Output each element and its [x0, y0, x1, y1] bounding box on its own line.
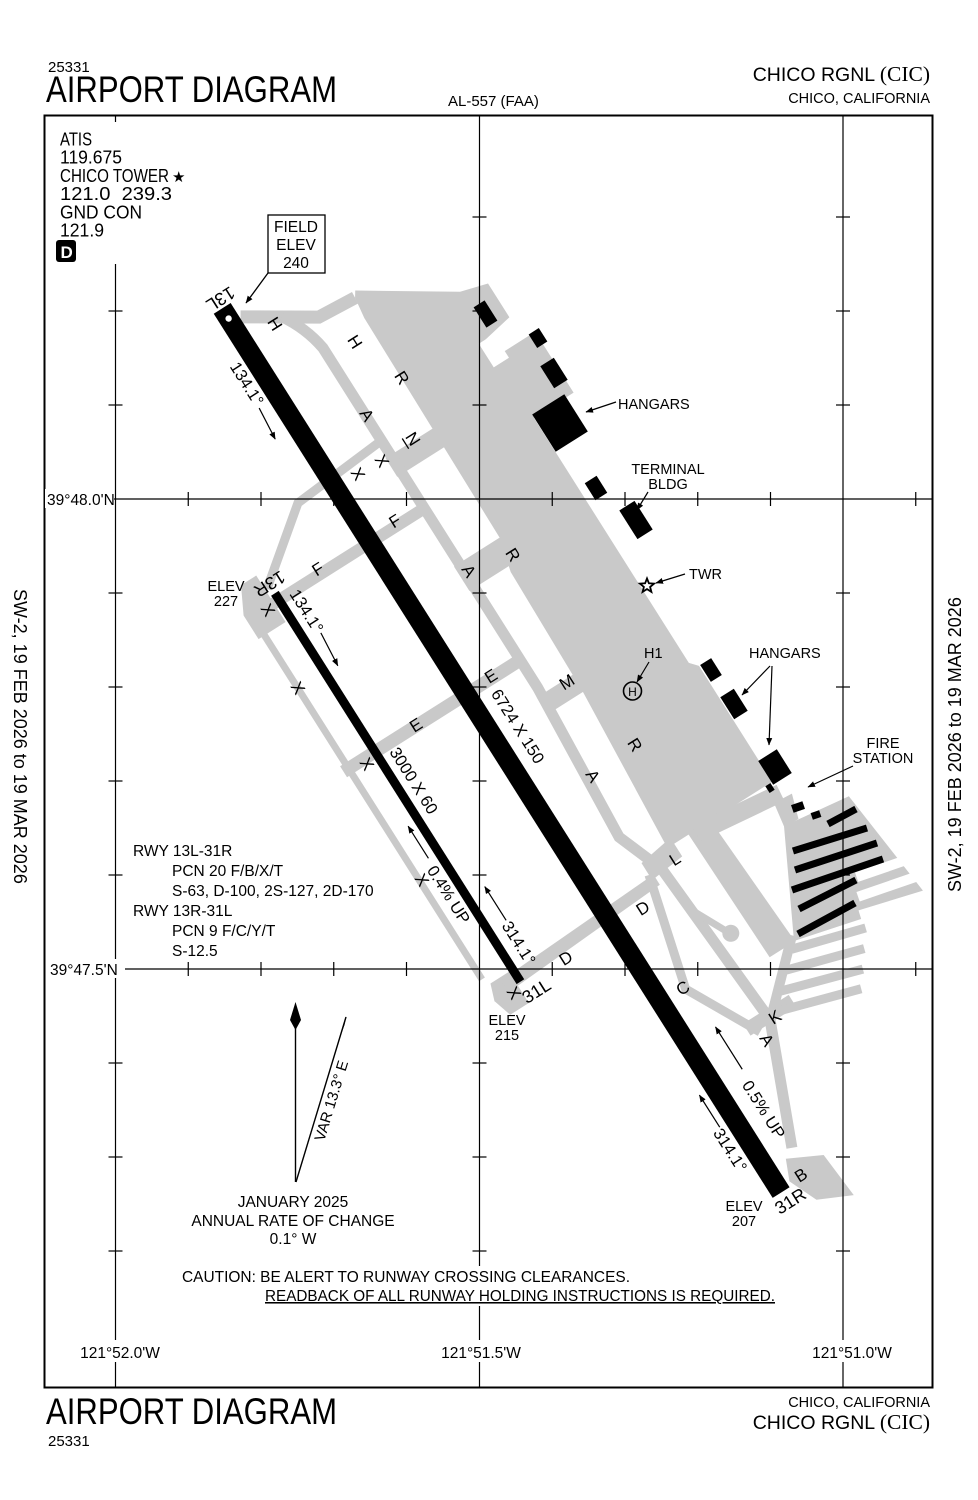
svg-text:AIRPORT DIAGRAM: AIRPORT DIAGRAM	[46, 69, 337, 110]
svg-text:FIRE: FIRE	[866, 736, 899, 752]
svg-text:215: 215	[495, 1028, 519, 1044]
svg-text:ELEV: ELEV	[725, 1199, 762, 1215]
svg-text:SW-2, 19 FEB 2026 to 19 MAR: SW-2, 19 FEB 2026 to 19 MAR 2026	[10, 589, 30, 884]
svg-text:121°52.0'W: 121°52.0'W	[80, 1345, 160, 1362]
svg-text:ELEV: ELEV	[488, 1013, 525, 1029]
svg-text:CHICO RGNL (CIC): CHICO RGNL (CIC)	[753, 62, 930, 86]
svg-text:PCN 9 F/C/Y/T: PCN 9 F/C/Y/T	[172, 923, 276, 940]
svg-text:STATION: STATION	[853, 751, 914, 767]
svg-text:121°51.0'W: 121°51.0'W	[812, 1345, 892, 1362]
svg-text:TERMINAL: TERMINAL	[631, 462, 704, 478]
svg-text:H1: H1	[644, 646, 663, 662]
svg-text:S-63, D-100, 2S-127, 2D-170: S-63, D-100, 2S-127, 2D-170	[172, 883, 374, 900]
svg-text:HANGARS: HANGARS	[618, 397, 690, 413]
svg-text:HANGARS: HANGARS	[749, 646, 821, 662]
svg-text:207: 207	[732, 1214, 756, 1230]
svg-text:240: 240	[283, 255, 309, 272]
svg-text:227: 227	[214, 594, 238, 610]
svg-text:25331: 25331	[48, 1433, 90, 1450]
svg-text:★: ★	[172, 169, 185, 186]
svg-text:SW-2, 19 FEB 2026 to 19 MAR: SW-2, 19 FEB 2026 to 19 MAR 2026	[945, 597, 965, 892]
svg-text:ELEV: ELEV	[276, 237, 316, 254]
svg-text:S-12.5: S-12.5	[172, 943, 218, 960]
svg-text:D: D	[61, 243, 73, 262]
svg-text:RWY 13L-31R: RWY 13L-31R	[133, 843, 232, 860]
svg-text:JANUARY 2025: JANUARY 2025	[238, 1194, 349, 1211]
svg-text:CAUTION: BE ALERT TO RUNWAY CR: CAUTION: BE ALERT TO RUNWAY CROSSING CLE…	[182, 1269, 630, 1286]
svg-text:CHICO RGNL (CIC): CHICO RGNL (CIC)	[753, 1410, 930, 1434]
svg-text:READBACK OF ALL RUNWAY HOLDING: READBACK OF ALL RUNWAY HOLDING INSTRUCTI…	[265, 1288, 775, 1305]
svg-text:FIELD: FIELD	[274, 219, 318, 236]
svg-text:TWR: TWR	[689, 567, 722, 583]
svg-text:121°51.5'W: 121°51.5'W	[441, 1345, 521, 1362]
svg-text:H: H	[628, 685, 637, 699]
svg-text:ANNUAL RATE OF CHANGE: ANNUAL RATE OF CHANGE	[191, 1213, 394, 1230]
svg-text:BLDG: BLDG	[648, 477, 688, 493]
svg-text:121.9: 121.9	[60, 220, 104, 241]
svg-text:ELEV: ELEV	[207, 579, 244, 595]
svg-text:39°48.0'N: 39°48.0'N	[47, 492, 115, 509]
svg-text:AL-557 (FAA): AL-557 (FAA)	[448, 93, 539, 110]
svg-text:0.1° W: 0.1° W	[270, 1231, 317, 1248]
svg-text:PCN 20 F/B/X/T: PCN 20 F/B/X/T	[172, 863, 284, 880]
svg-text:39°47.5'N: 39°47.5'N	[50, 962, 118, 979]
svg-text:CHICO, CALIFORNIA: CHICO, CALIFORNIA	[788, 91, 930, 107]
svg-text:CHICO, CALIFORNIA: CHICO, CALIFORNIA	[788, 1395, 930, 1411]
svg-text:AIRPORT DIAGRAM: AIRPORT DIAGRAM	[46, 1391, 337, 1432]
svg-text:RWY 13R-31L: RWY 13R-31L	[133, 903, 233, 920]
